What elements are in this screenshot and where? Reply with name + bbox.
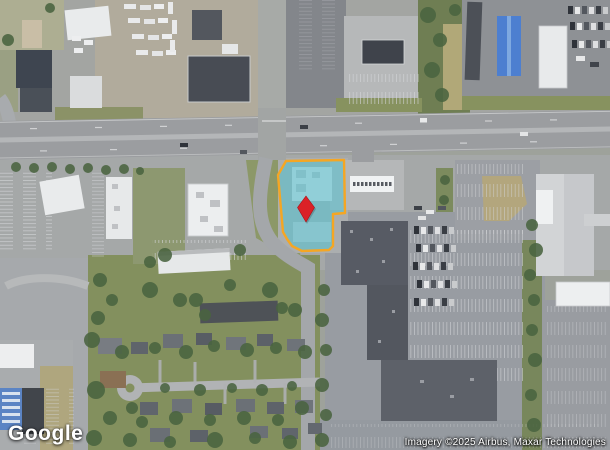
google-logo[interactable]: Google — [8, 422, 83, 446]
map-viewport[interactable]: Google Imagery ©2025 Airbus, Maxar Techn… — [0, 0, 610, 450]
satellite-imagery[interactable] — [0, 0, 610, 450]
attribution-text: Imagery ©2025 Airbus, Maxar Technologies — [405, 437, 606, 448]
